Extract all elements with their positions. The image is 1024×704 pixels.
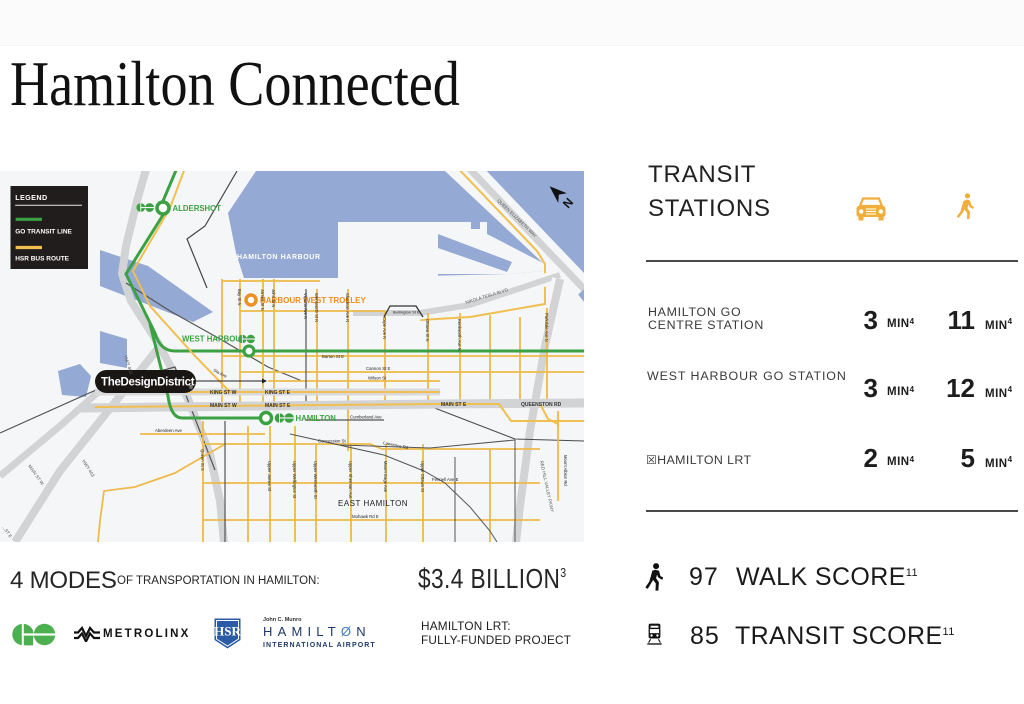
svg-text:MAIN ST W: MAIN ST W [210, 403, 237, 409]
svg-text:James St N: James St N [260, 289, 265, 311]
svg-text:ALDERSHOT: ALDERSHOT [173, 204, 222, 213]
svg-text:Wilson St: Wilson St [368, 376, 387, 381]
svg-text:Cumberland Ave: Cumberland Ave [350, 415, 382, 420]
svg-text:Barton St E: Barton St E [322, 354, 344, 359]
svg-text:®: ® [189, 384, 193, 391]
svg-text:Cope Ave N: Cope Ave N [382, 317, 387, 339]
svg-text:Parkdale Ave N: Parkdale Ave N [544, 313, 549, 342]
svg-text:Burlington St E: Burlington St E [393, 310, 420, 315]
svg-text:Ottawa St N: Ottawa St N [425, 319, 430, 342]
svg-text:KING ST E: KING ST E [265, 390, 291, 396]
svg-text:Mohawk Rd E: Mohawk Rd E [352, 514, 379, 519]
svg-text:KING ST W: KING ST W [210, 390, 237, 396]
svg-text:Concession St: Concession St [318, 439, 347, 444]
svg-text:Upper Sherman Ave: Upper Sherman Ave [348, 461, 353, 499]
svg-text:Kenilworth Ave N: Kenilworth Ave N [457, 319, 462, 351]
svg-text:Victoria Ave N: Victoria Ave N [303, 293, 308, 319]
svg-text:HAMILTON: HAMILTON [296, 414, 337, 423]
svg-text:HSR BUS ROUTE: HSR BUS ROUTE [15, 255, 69, 262]
svg-text:EAST HAMILTON: EAST HAMILTON [338, 499, 408, 508]
svg-text:QUEENSTON RD: QUEENSTON RD [521, 402, 562, 408]
svg-text:LEGEND: LEGEND [15, 193, 47, 202]
svg-text:Upper Ottawa St: Upper Ottawa St [420, 461, 425, 493]
svg-text:Bay St N: Bay St N [237, 289, 242, 306]
svg-text:Mount Gage Ave: Mount Gage Ave [383, 461, 388, 493]
svg-text:Upper Wellington St: Upper Wellington St [292, 461, 297, 499]
svg-text:MAIN ST E: MAIN ST E [265, 403, 291, 409]
svg-text:TheDesignDistrict: TheDesignDistrict [101, 377, 195, 389]
svg-text:Sherman Ave N: Sherman Ave N [345, 293, 350, 322]
svg-text:Upper James St: Upper James St [267, 461, 272, 492]
svg-text:Queen St S: Queen St S [200, 449, 205, 471]
svg-text:HAMILTON HARBOUR: HAMILTON HARBOUR [237, 254, 321, 261]
svg-text:Cannon St E: Cannon St E [366, 366, 390, 371]
svg-text:Aberdeen Ave: Aberdeen Ave [155, 428, 183, 433]
svg-text:Wentworth St N: Wentworth St N [314, 293, 319, 322]
svg-text:MAIN ST E: MAIN ST E [441, 402, 467, 408]
svg-text:Mount Albion Rd: Mount Albion Rd [563, 455, 568, 486]
svg-text:Upper Wentworth St: Upper Wentworth St [313, 461, 318, 499]
svg-text:Fennell Ave E: Fennell Ave E [432, 477, 459, 482]
svg-text:HSR: HSR [214, 624, 241, 639]
svg-text:WEST HARBOUR: WEST HARBOUR [182, 335, 247, 344]
svg-text:GO TRANSIT LINE: GO TRANSIT LINE [15, 228, 72, 235]
svg-text:John St N: John St N [271, 289, 276, 307]
